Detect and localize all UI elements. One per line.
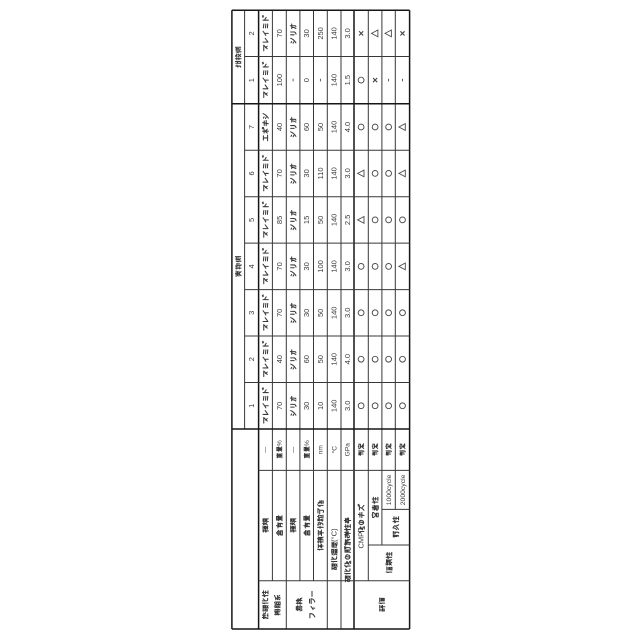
svg-text:4: 4 (247, 264, 256, 268)
svg-text:140: 140 (330, 121, 339, 134)
svg-text:140: 140 (330, 74, 339, 87)
svg-text:4.0: 4.0 (343, 354, 352, 364)
svg-text:85: 85 (275, 216, 284, 224)
svg-text:140: 140 (330, 353, 339, 366)
svg-text:—: — (291, 447, 297, 453)
svg-text:70: 70 (275, 29, 284, 37)
svg-text:30: 30 (302, 309, 311, 317)
svg-text:3.0: 3.0 (343, 401, 352, 411)
svg-text:30: 30 (302, 402, 311, 410)
svg-text:60: 60 (302, 355, 311, 363)
svg-text:100: 100 (316, 260, 325, 273)
svg-text:5: 5 (247, 218, 256, 222)
svg-text:—: — (264, 447, 270, 453)
svg-text:140: 140 (330, 214, 339, 227)
svg-text:70: 70 (275, 262, 284, 270)
svg-text:40: 40 (275, 123, 284, 131)
svg-text:2: 2 (247, 31, 256, 35)
svg-text:30: 30 (302, 169, 311, 177)
svg-text:%: % (277, 440, 284, 446)
svg-text:6: 6 (247, 171, 256, 175)
svg-text:CMP: CMP (357, 532, 366, 549)
svg-text:10: 10 (316, 402, 325, 410)
svg-text:1.5: 1.5 (343, 75, 352, 85)
svg-text:3.0: 3.0 (343, 28, 352, 38)
svg-text:1000cycle: 1000cycle (386, 474, 393, 505)
svg-text:140: 140 (330, 307, 339, 320)
svg-text:1: 1 (247, 404, 256, 408)
svg-text:7: 7 (247, 125, 256, 129)
svg-text:2: 2 (247, 357, 256, 361)
svg-text:GPa: GPa (345, 443, 352, 457)
svg-text:2.5: 2.5 (343, 215, 352, 225)
svg-text:60: 60 (302, 123, 311, 131)
svg-text:250: 250 (316, 27, 325, 40)
svg-text:50: 50 (316, 123, 325, 131)
svg-text:%: % (304, 440, 311, 446)
svg-text:140: 140 (330, 400, 339, 413)
svg-text:70: 70 (275, 402, 284, 410)
svg-text:3.0: 3.0 (343, 168, 352, 178)
svg-text:70: 70 (275, 309, 284, 317)
svg-text:100: 100 (275, 74, 284, 87)
svg-text:140: 140 (330, 260, 339, 273)
svg-text:°C: °C (330, 446, 338, 454)
svg-text:70: 70 (275, 169, 284, 177)
svg-text:40: 40 (275, 355, 284, 363)
svg-text:140: 140 (330, 167, 339, 180)
svg-text:2000cycle: 2000cycle (400, 474, 407, 505)
svg-text:30: 30 (302, 29, 311, 37)
svg-text:3: 3 (247, 311, 256, 315)
svg-text:50: 50 (316, 355, 325, 363)
svg-text:3.0: 3.0 (343, 308, 352, 318)
svg-text:1: 1 (247, 78, 256, 82)
svg-text:50: 50 (316, 216, 325, 224)
svg-text:30: 30 (302, 262, 311, 270)
svg-text:110: 110 (316, 167, 325, 179)
svg-text:140: 140 (330, 27, 339, 40)
svg-text:3.0: 3.0 (343, 261, 352, 271)
svg-text:15: 15 (302, 216, 311, 224)
svg-text:0: 0 (302, 78, 311, 82)
svg-text:nm: nm (318, 445, 325, 455)
svg-text:50: 50 (316, 309, 325, 317)
svg-text:4.0: 4.0 (343, 122, 352, 132)
svg-text:(°C): (°C) (330, 528, 339, 542)
